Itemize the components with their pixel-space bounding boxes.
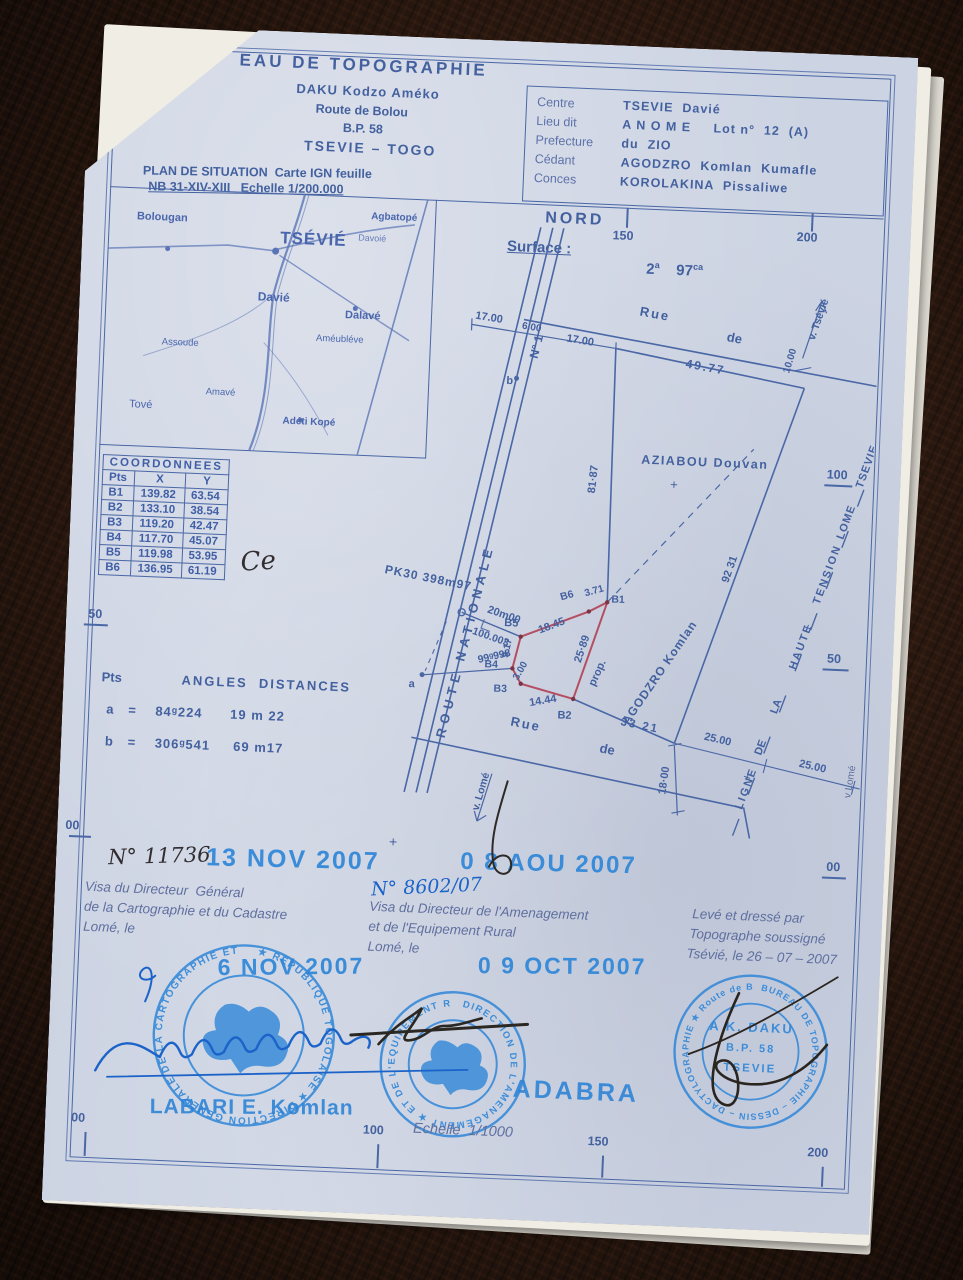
svg-text:★ REPUBLIQUE TOGOLAISE ★ DIREC: ★ REPUBLIQUE TOGOLAISE ★ DIRECTION GENER…: [42, 23, 376, 1129]
blue-pen-signature: [95, 966, 471, 1092]
svg-text:BUREAU DE TOPOGRAPHIE – DESSIN: BUREAU DE TOPOGRAPHIE – DESSIN – DACTYLO…: [42, 23, 863, 1124]
pen-squiggle-mark: [489, 781, 515, 874]
ruler-label-bottom-100: 100: [363, 1124, 384, 1138]
left-stamp-emblem: [201, 1003, 290, 1076]
ruler-label-bottom-200: 200: [807, 1146, 828, 1160]
ruler-label-bottom-150: 150: [587, 1135, 608, 1149]
left-stamp-officer-name: LABARI E. Komlan: [150, 1096, 354, 1119]
mid-stamp-emblem: [420, 1040, 489, 1097]
mid-stamp-officer-name: ADABRA: [512, 1076, 639, 1108]
survey-plan-document: EAU DE TOPOGRAPHIE DAKU Kodzo Améko Rout…: [42, 23, 919, 1235]
right-stamp-bp: B.P. 58: [726, 1042, 776, 1056]
left-stamp-ring-text: ★ REPUBLIQUE TOGOLAISE ★ DIRECTION GENER…: [42, 23, 376, 1129]
stamps-signatures-layer: ★ REPUBLIQUE TOGOLAISE ★ DIRECTION GENER…: [42, 23, 919, 1235]
right-stamp-ring-text: BUREAU DE TOPOGRAPHIE – DESSIN – DACTYLO…: [42, 23, 863, 1124]
ruler-label-bottom-00: 00: [71, 1111, 85, 1125]
photo-scene: EAU DE TOPOGRAPHIE DAKU Kodzo Améko Rout…: [0, 0, 963, 1280]
